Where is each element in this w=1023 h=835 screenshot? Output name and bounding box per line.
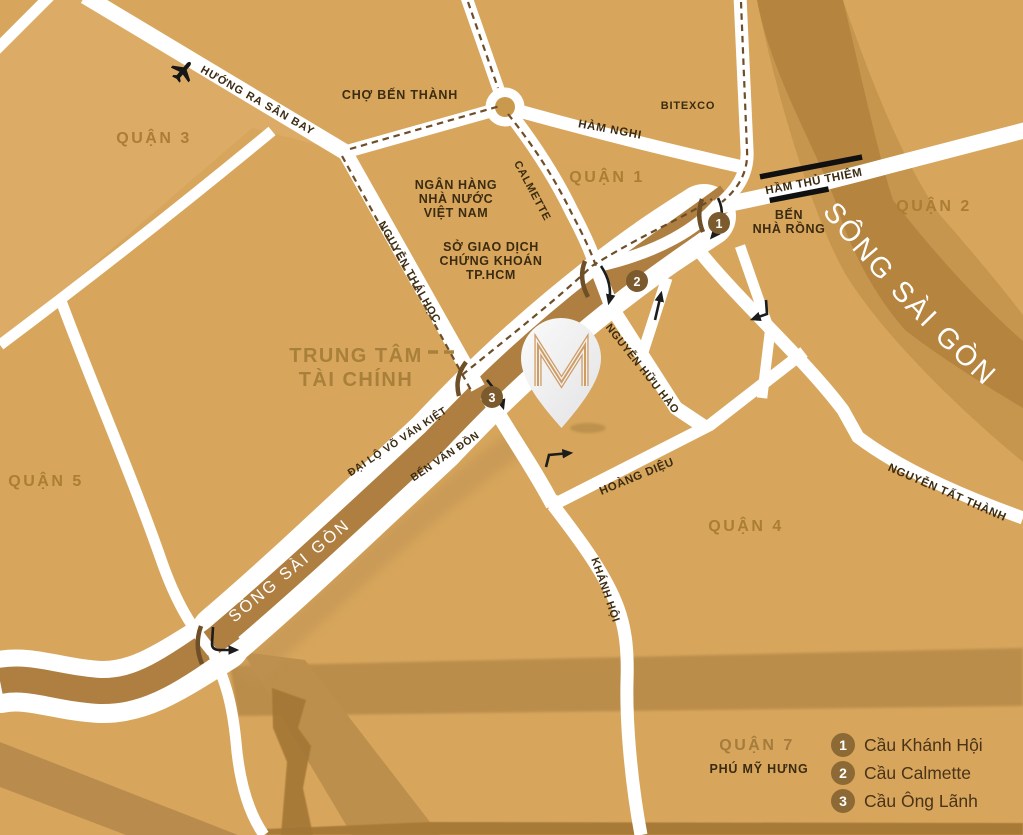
- svg-text:TRUNG TÂM: TRUNG TÂM: [289, 343, 422, 367]
- svg-text:NHÀ RỒNG: NHÀ RỒNG: [753, 221, 826, 236]
- svg-text:CHỢ BẾN THÀNH: CHỢ BẾN THÀNH: [342, 87, 458, 102]
- svg-text:Cầu Khánh Hội: Cầu Khánh Hội: [864, 735, 983, 755]
- svg-text:PHÚ MỸ HƯNG: PHÚ MỸ HƯNG: [709, 761, 808, 776]
- svg-text:BẾN: BẾN: [775, 207, 803, 222]
- svg-text:2: 2: [839, 765, 847, 781]
- svg-text:QUẬN 4: QUẬN 4: [708, 516, 783, 535]
- svg-text:NGÂN HÀNG: NGÂN HÀNG: [415, 177, 497, 192]
- svg-text:VIỆT NAM: VIỆT NAM: [424, 205, 489, 220]
- svg-text:QUẬN 2: QUẬN 2: [896, 196, 971, 215]
- svg-text:3: 3: [489, 391, 496, 405]
- svg-text:2: 2: [634, 275, 641, 289]
- svg-text:QUẬN 7: QUẬN 7: [719, 735, 794, 754]
- svg-text:QUẬN 1: QUẬN 1: [569, 167, 644, 186]
- svg-text:NHÀ NƯỚC: NHÀ NƯỚC: [419, 191, 493, 206]
- svg-text:SỞ GIAO DỊCH: SỞ GIAO DỊCH: [443, 239, 539, 254]
- svg-text:QUẬN 3: QUẬN 3: [116, 128, 191, 147]
- svg-text:Cầu Ông Lãnh: Cầu Ông Lãnh: [864, 790, 978, 811]
- svg-text:QUẬN 5: QUẬN 5: [8, 471, 83, 490]
- svg-text:Cầu Calmette: Cầu Calmette: [864, 763, 971, 783]
- svg-text:3: 3: [839, 793, 847, 809]
- svg-text:CHỨNG KHOÁN: CHỨNG KHOÁN: [439, 253, 542, 268]
- svg-text:1: 1: [716, 217, 723, 231]
- svg-text:TP.HCM: TP.HCM: [466, 268, 516, 282]
- svg-text:BITEXCO: BITEXCO: [661, 100, 716, 112]
- svg-text:1: 1: [839, 737, 847, 753]
- svg-text:TÀI CHÍNH: TÀI CHÍNH: [299, 368, 414, 391]
